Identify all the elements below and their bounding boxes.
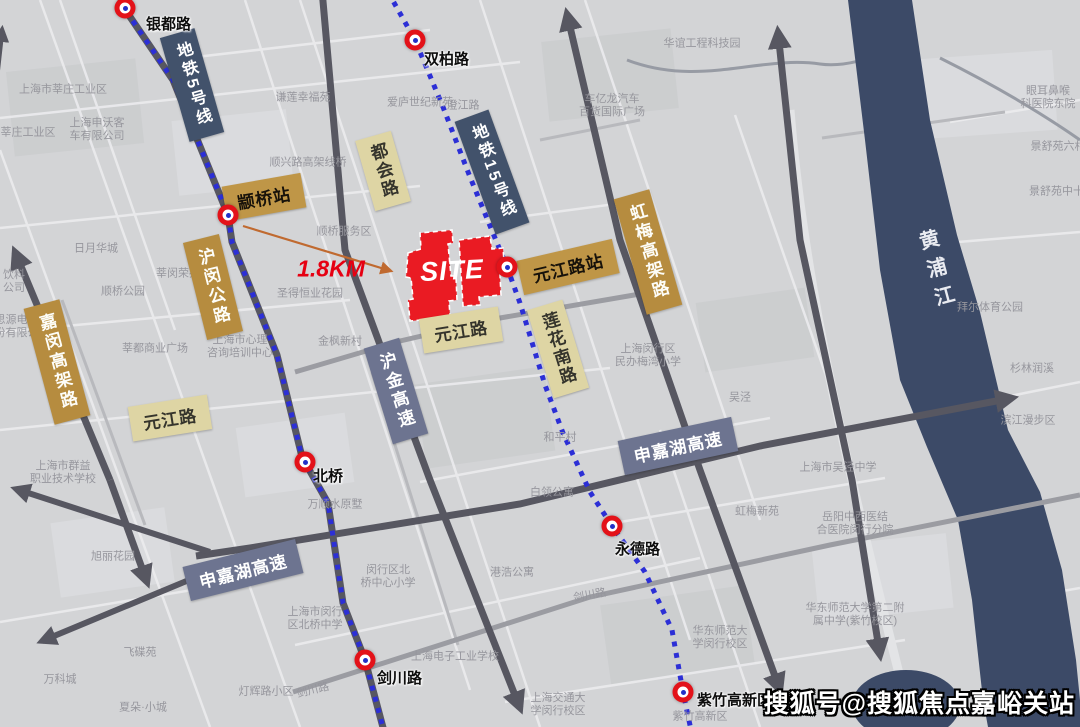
map-area-label: 圣得恒业花园 [277, 288, 343, 301]
map-area-label: 和平村 [544, 432, 577, 445]
map-area-label: 华东师范大学闵行校区 [693, 625, 748, 651]
station-label-beiqiao: 北桥 [313, 465, 343, 486]
map-area-label: 上海市心理咨询培训中心 [207, 334, 273, 360]
station-marker-jianchuanlu [355, 650, 376, 671]
map-area-label: 上海市莘庄工业区 [19, 84, 107, 97]
map-area-label: 华谊工程科技园 [664, 38, 741, 51]
location-map: 上海市莘庄工业区上海申沃客车有限公司莘庄工业区谦莲幸福苑爱庐世纪新苑澄江路车亿龙… [0, 0, 1080, 727]
map-area-label: 华东师范大学第二附属中学(紫竹校区) [806, 602, 905, 628]
station-marker-yongdelu [602, 516, 623, 537]
map-area-label: 闵行区北桥中心小学 [361, 564, 416, 590]
station-label-yongdelu: 永德路 [615, 538, 660, 559]
map-area-label: 吴泾 [729, 392, 751, 405]
map-area-label: 上海市群益职业技术学校 [30, 460, 96, 486]
map-area-label: 杉林润溪 [1010, 363, 1054, 376]
map-area-label: 莘都商业广场 [122, 343, 188, 356]
map-area-label: 莘庄工业区 [1, 127, 56, 140]
map-area-label: 眼耳鼻喉科医院东院 [1021, 85, 1076, 111]
map-area-label: 上海电子工业学校 [411, 651, 499, 664]
map-area-label: 上海市闵行区北桥中学 [288, 606, 343, 632]
map-area-label: 万顺水原墅 [308, 499, 363, 512]
map-area-label: 夏朵·小城 [119, 702, 167, 715]
map-area-label: 饮料公司 [3, 269, 25, 295]
area-labels-layer: 上海市莘庄工业区上海申沃客车有限公司莘庄工业区谦莲幸福苑爱庐世纪新苑澄江路车亿龙… [0, 0, 1080, 727]
map-area-label: 谦莲幸福苑 [276, 92, 331, 105]
map-area-label: 白领公寓 [530, 487, 574, 500]
station-marker-zhuanqiao [218, 205, 239, 226]
map-area-label: 飞碟苑 [124, 647, 157, 660]
map-area-label: 上海市吴泾中学 [800, 462, 877, 475]
map-area-label: 顺兴路高架线桥 [270, 157, 347, 170]
map-area-label: 金枫新村 [318, 336, 362, 349]
station-label-jianchuanlu: 剑川路 [377, 667, 422, 688]
map-area-label: 景舒苑中十村 [1029, 186, 1080, 199]
map-area-label: 顺桥服务区 [317, 226, 372, 239]
station-marker-yuanjianglu [497, 257, 518, 278]
station-marker-zizhu-hitech [673, 682, 694, 703]
map-area-label: 上海闵行区民办梅湾小学 [615, 343, 681, 369]
map-area-label: 虹梅新苑 [735, 506, 779, 519]
map-area-label: 旭丽花园 [91, 551, 135, 564]
station-marker-shuangbailu [405, 30, 426, 51]
map-area-label: 滨江漫步区 [1001, 415, 1056, 428]
site-label: SITE [419, 254, 485, 288]
map-area-label: 岳阳中西医结合医院闵行分院 [817, 511, 894, 537]
station-label-zizhu-hitech: 紫竹高新区 [697, 689, 772, 710]
map-area-label: 剑川路 [573, 587, 608, 606]
map-area-label: 拜尔体育公园 [957, 302, 1023, 315]
map-area-label: 景舒苑六村 [1031, 141, 1080, 154]
map-area-label: 顺桥公园 [101, 286, 145, 299]
map-area-label: 紫竹高新区 [673, 711, 728, 724]
map-area-label: 港浩公寓 [490, 567, 534, 580]
station-label-yindulu: 银都路 [146, 13, 191, 34]
map-area-label: 上海申沃客车有限公司 [70, 117, 125, 143]
map-area-label: 剑川路 [295, 681, 330, 702]
map-area-label: 日月华城 [74, 243, 118, 256]
map-area-label: 爱庐世纪新苑 [387, 97, 453, 110]
map-area-label: 万科城 [44, 674, 77, 687]
map-area-label: 上海交通大学闵行校区 [531, 692, 586, 718]
map-area-label: 车亿龙汽车百货国际广场 [579, 93, 645, 119]
watermark: 搜狐号@搜狐焦点嘉峪关站 [764, 684, 1075, 720]
map-area-label: 澄江路 [447, 100, 480, 113]
distance-label: 1.8KM [297, 256, 365, 283]
map-area-label: 灯辉路小区 [239, 686, 294, 699]
station-label-shuangbailu: 双柏路 [424, 48, 469, 69]
